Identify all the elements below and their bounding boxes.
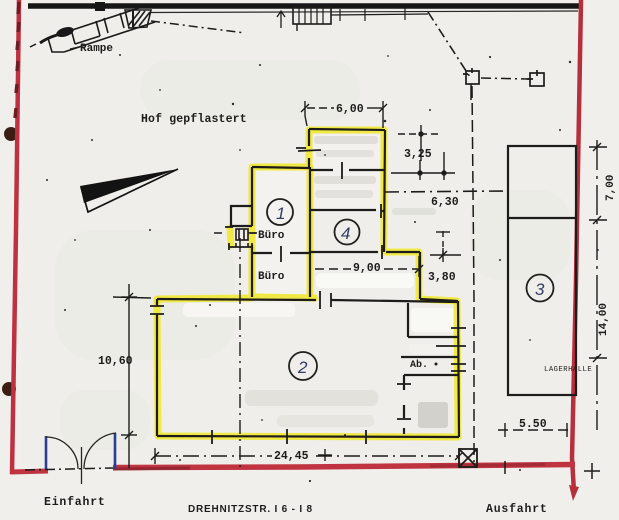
svg-text:10,60: 10,60: [98, 355, 133, 368]
svg-text:Rampe: Rampe: [80, 43, 113, 55]
svg-text:Hof gepflastert: Hof gepflastert: [141, 113, 247, 126]
svg-text:Büro: Büro: [258, 271, 285, 283]
svg-text:6,30: 6,30: [431, 196, 459, 209]
svg-text:7,00: 7,00: [605, 175, 617, 201]
svg-text:9,00: 9,00: [353, 262, 381, 275]
svg-text:24,45: 24,45: [274, 450, 309, 463]
svg-text:5.50: 5.50: [519, 418, 547, 431]
svg-text:6,00: 6,00: [336, 103, 364, 116]
svg-text:4: 4: [341, 224, 350, 243]
svg-text:3,80: 3,80: [428, 271, 456, 284]
svg-text:2: 2: [297, 358, 308, 377]
svg-text:Büro: Büro: [258, 230, 285, 242]
svg-text:LAGERHALLE: LAGERHALLE: [544, 366, 592, 374]
svg-text:1: 1: [276, 204, 285, 223]
svg-text:Ab.: Ab.: [410, 359, 428, 371]
svg-text:3: 3: [535, 280, 545, 299]
svg-text:3,25: 3,25: [404, 148, 432, 161]
svg-text:DREHNITZSTR. I 6 - I 8: DREHNITZSTR. I 6 - I 8: [188, 504, 313, 515]
svg-text:Einfahrt: Einfahrt: [44, 496, 106, 509]
svg-text:14,00: 14,00: [598, 303, 610, 336]
svg-text:Ausfahrt: Ausfahrt: [486, 503, 548, 516]
